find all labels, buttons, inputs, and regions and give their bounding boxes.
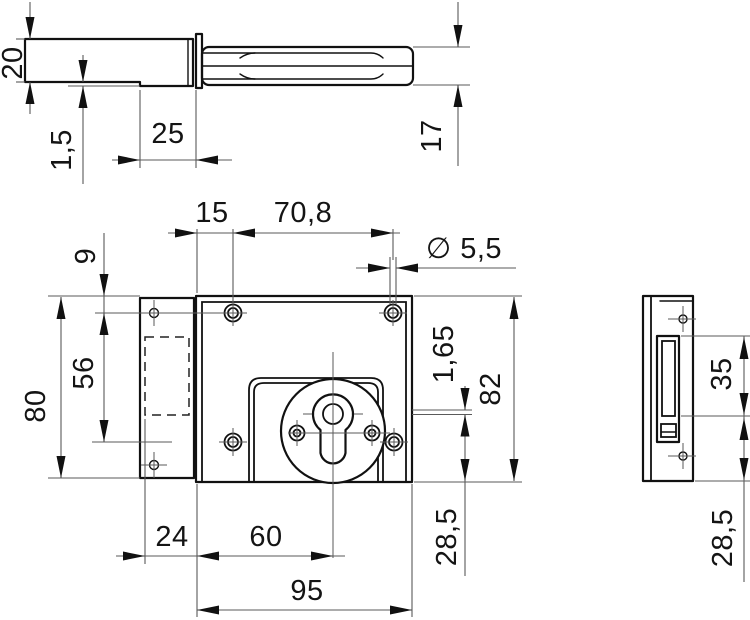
arrowhead	[79, 60, 88, 82]
mounting-flange	[140, 298, 194, 478]
arrowhead	[371, 229, 393, 238]
arrowhead	[26, 17, 35, 39]
dim-label: 15	[195, 197, 228, 229]
side-view: 35 28,5	[643, 296, 750, 582]
arrowhead	[461, 459, 470, 481]
arrowhead	[461, 415, 470, 437]
arrowhead	[57, 456, 66, 478]
arrowhead	[57, 297, 66, 319]
arrowhead	[461, 388, 470, 410]
arrowhead	[510, 459, 519, 481]
bolt-bevel-bottom	[203, 74, 383, 79]
arrowhead	[390, 606, 412, 615]
arrowhead	[396, 264, 418, 273]
dimension-hole-positions: 15 70,8	[168, 197, 400, 303]
arrowhead	[175, 229, 197, 238]
dim-label: 82	[475, 372, 507, 405]
arrowhead	[740, 418, 749, 440]
arrowhead	[740, 458, 749, 480]
dimension-axis-offsets: 1,65 28,5	[412, 325, 472, 576]
dim-label: 70,8	[274, 197, 332, 229]
arrowhead	[79, 86, 88, 108]
dim-label: 25	[151, 118, 184, 150]
bolt-bevel-top	[203, 53, 383, 58]
arrowhead	[197, 606, 219, 615]
dim-label: 95	[290, 575, 323, 607]
dim-label: 60	[249, 521, 282, 553]
case-top-outline	[25, 39, 193, 86]
arrowhead	[118, 156, 140, 165]
arrowhead	[26, 82, 35, 104]
latch-step	[661, 424, 676, 437]
dim-label: 24	[155, 521, 188, 553]
arrowhead	[311, 552, 333, 561]
arrowhead	[100, 313, 109, 335]
arrowhead	[454, 85, 463, 107]
arrowhead	[510, 297, 519, 319]
dim-label: 35	[706, 357, 738, 390]
dimension-plate-thickness: 1,5	[46, 55, 140, 184]
arrowhead	[100, 420, 109, 442]
lock-drawing-svg: 20 1,5 25 17	[0, 0, 750, 620]
dimension-slot: 35 28,5	[681, 336, 750, 582]
bolt-bevel-top-hook	[240, 53, 255, 58]
arrowhead	[100, 274, 109, 296]
arrowhead	[454, 25, 463, 47]
dim-label: 1,65	[428, 325, 460, 383]
front-view: 15 70,8 ∅ 5,5 9 56	[20, 197, 522, 617]
dim-label: 56	[68, 356, 100, 389]
technical-drawing-page: 20 1,5 25 17	[0, 0, 750, 620]
dimension-hole-diameter: ∅ 5,5	[356, 233, 516, 304]
arrowhead	[233, 229, 255, 238]
arrowhead	[196, 156, 218, 165]
dim-label: ∅ 5,5	[426, 233, 502, 265]
latch-through-slot	[662, 341, 675, 416]
dimension-bolt-width: 17	[413, 2, 470, 166]
hidden-edge-dashed	[145, 337, 189, 415]
dim-label: 28,5	[707, 509, 739, 567]
arrowhead	[197, 552, 219, 561]
arrowhead	[740, 393, 749, 415]
bolt-bevel-bottom-hook	[240, 74, 255, 79]
dim-label: 28,5	[431, 508, 463, 566]
dim-label: 80	[20, 389, 52, 422]
centerlines	[668, 306, 696, 469]
arrowhead	[368, 264, 390, 273]
dimension-case-depth: 20	[0, 2, 35, 114]
dimension-hole-rows: 9 56	[68, 233, 247, 442]
dim-label: 20	[0, 46, 29, 79]
arrowhead	[740, 337, 749, 359]
dim-label: 17	[416, 119, 448, 152]
dim-label: 9	[70, 248, 102, 265]
dimension-bolt-overlap: 25	[112, 90, 232, 168]
top-view: 20 1,5 25 17	[0, 2, 470, 184]
arrowhead	[123, 552, 145, 561]
dim-label: 1,5	[46, 129, 78, 171]
